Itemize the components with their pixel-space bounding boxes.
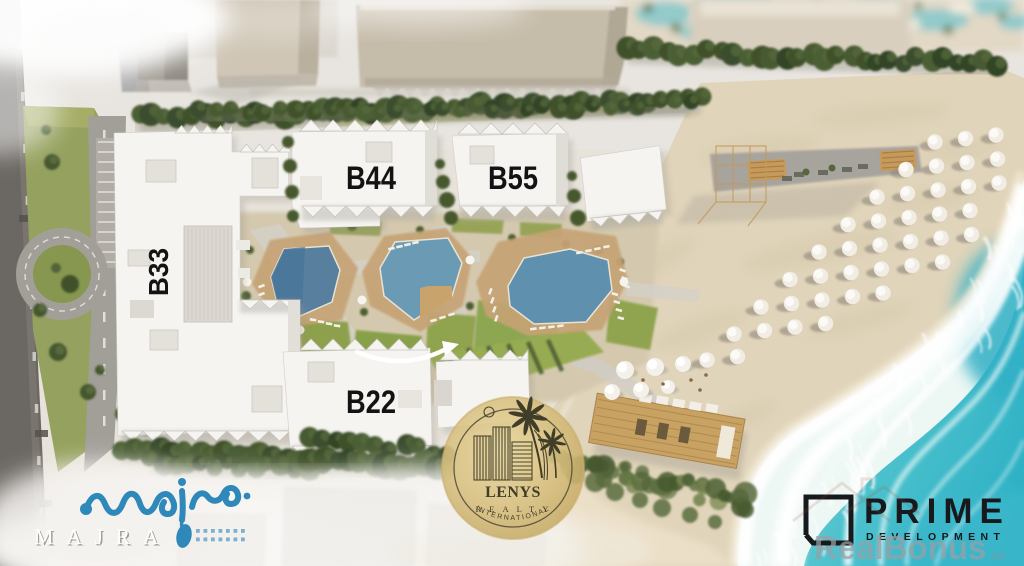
svg-text:B55: B55 — [488, 160, 538, 196]
svg-text:RealBonus: RealBonus — [814, 529, 986, 566]
svg-text:PRIME: PRIME — [864, 492, 1010, 531]
svg-text:B44: B44 — [346, 160, 396, 196]
svg-text:.sa: .sa — [988, 548, 1005, 562]
svg-text:B33: B33 — [143, 248, 174, 296]
svg-text:MAJRA: MAJRA — [34, 524, 171, 549]
svg-text:B22: B22 — [346, 384, 396, 420]
svg-text:LENYS: LENYS — [485, 484, 541, 501]
